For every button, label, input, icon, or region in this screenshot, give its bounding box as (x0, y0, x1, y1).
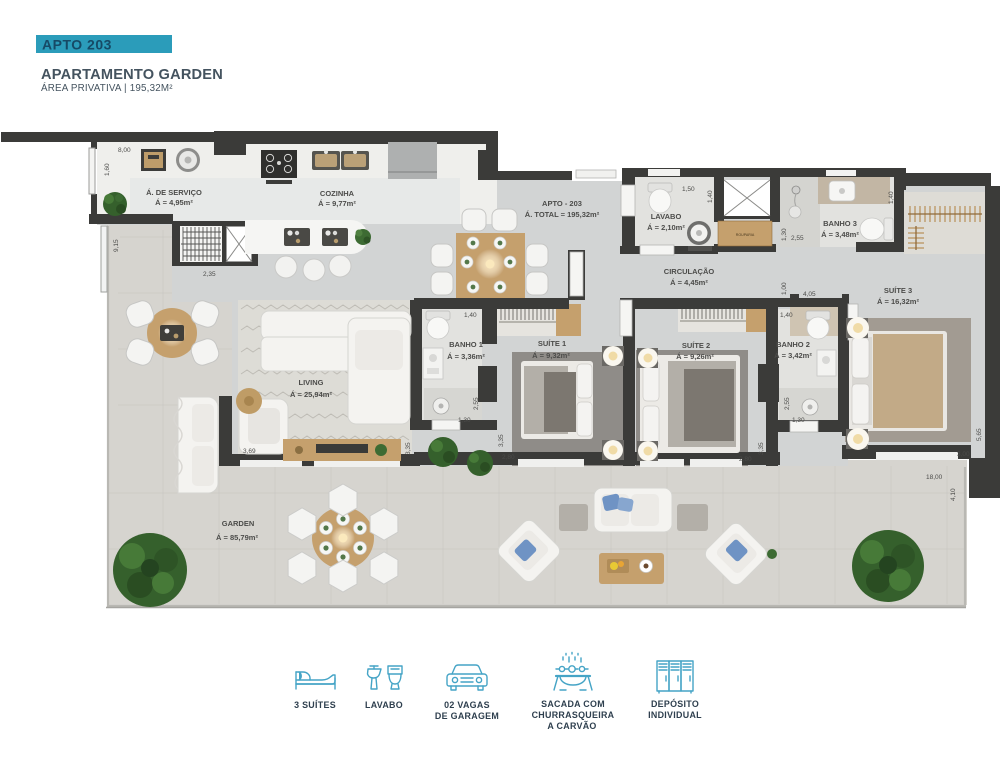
svg-text:APTO - 203: APTO - 203 (542, 199, 582, 208)
svg-text:1,40: 1,40 (707, 190, 714, 203)
svg-text:APARTAMENTO GARDEN: APARTAMENTO GARDEN (41, 67, 223, 83)
svg-text:SACADA COM: SACADA COM (541, 699, 605, 709)
svg-text:INDIVIDUAL: INDIVIDUAL (648, 710, 702, 720)
svg-text:18,00: 18,00 (926, 474, 943, 481)
svg-text:1,40: 1,40 (888, 191, 895, 204)
svg-text:8,00: 8,00 (118, 147, 131, 154)
svg-text:1,30: 1,30 (458, 417, 471, 424)
svg-text:BANHO 2: BANHO 2 (776, 340, 810, 349)
svg-text:1,60: 1,60 (104, 163, 111, 176)
svg-text:1,40: 1,40 (780, 312, 793, 319)
svg-text:2,80: 2,80 (502, 454, 515, 461)
svg-text:Á = 85,79m²: Á = 85,79m² (216, 533, 258, 542)
svg-text:1,30: 1,30 (781, 228, 788, 241)
svg-text:02 VAGAS: 02 VAGAS (444, 700, 490, 710)
svg-text:BANHO 3: BANHO 3 (823, 219, 857, 228)
svg-text:2,80: 2,80 (739, 456, 752, 463)
svg-text:Á. TOTAL = 195,32m²: Á. TOTAL = 195,32m² (525, 210, 600, 219)
svg-text:ÁREA PRIVATIVA | 195,32M²: ÁREA PRIVATIVA | 195,32M² (41, 83, 173, 94)
svg-text:SUÍTE 1: SUÍTE 1 (538, 339, 566, 348)
svg-text:2,55: 2,55 (784, 397, 791, 410)
svg-text:3,35: 3,35 (405, 442, 412, 455)
svg-text:Á = 25,94m²: Á = 25,94m² (290, 390, 332, 399)
svg-text:2,35: 2,35 (203, 271, 216, 278)
svg-text:3 SUÍTES: 3 SUÍTES (294, 700, 336, 710)
svg-text:3,69: 3,69 (243, 448, 256, 455)
svg-text:2,55: 2,55 (473, 397, 480, 410)
svg-text:Á = 3,48m²: Á = 3,48m² (821, 230, 859, 239)
svg-text:Á = 3,36m²: Á = 3,36m² (447, 352, 485, 361)
svg-text:4,05: 4,05 (803, 291, 816, 298)
svg-text:9,15: 9,15 (113, 239, 120, 252)
svg-text:SUÍTE 2: SUÍTE 2 (682, 341, 710, 350)
svg-text:LIVING: LIVING (298, 378, 323, 387)
svg-text:CHURRASQUEIRA: CHURRASQUEIRA (532, 710, 615, 720)
svg-text:1,00: 1,00 (781, 282, 788, 295)
svg-text:DEPÓSITO: DEPÓSITO (651, 698, 699, 709)
svg-text:1,40: 1,40 (464, 312, 477, 319)
svg-text:Á. DE SERVIÇO: Á. DE SERVIÇO (146, 188, 202, 197)
svg-text:LAVABO: LAVABO (365, 700, 403, 710)
svg-text:GARDEN: GARDEN (222, 519, 255, 528)
svg-text:SUÍTE 3: SUÍTE 3 (884, 286, 912, 295)
svg-text:COZINHA: COZINHA (320, 189, 355, 198)
svg-text:3,35: 3,35 (498, 434, 505, 447)
svg-text:BANHO 1: BANHO 1 (449, 340, 483, 349)
svg-text:5,65: 5,65 (976, 428, 983, 441)
svg-text:Á = 9,26m²: Á = 9,26m² (676, 352, 714, 361)
svg-text:DE GARAGEM: DE GARAGEM (435, 711, 499, 721)
svg-text:CIRCULAÇÃO: CIRCULAÇÃO (664, 267, 715, 276)
svg-text:Á = 2,10m²: Á = 2,10m² (647, 223, 685, 232)
svg-text:3,00: 3,00 (957, 451, 970, 458)
svg-text:Á = 3,42m²: Á = 3,42m² (774, 351, 812, 360)
svg-text:1,50: 1,50 (682, 186, 695, 193)
svg-text:Á = 9,77m²: Á = 9,77m² (318, 199, 356, 208)
svg-text:Á = 9,32m²: Á = 9,32m² (532, 351, 570, 360)
svg-text:2,55: 2,55 (791, 235, 804, 242)
svg-text:APTO 203: APTO 203 (42, 37, 112, 53)
svg-text:Á = 4,45m²: Á = 4,45m² (670, 278, 708, 287)
svg-text:4,10: 4,10 (950, 488, 957, 501)
svg-text:Á = 16,32m²: Á = 16,32m² (877, 297, 919, 306)
svg-text:Á = 4,95m²: Á = 4,95m² (155, 198, 193, 207)
svg-text:ROUPARIA: ROUPARIA (736, 233, 755, 237)
svg-text:3,35: 3,35 (758, 442, 765, 455)
svg-text:A CARVÃO: A CARVÃO (547, 721, 596, 731)
svg-text:LAVABO: LAVABO (651, 212, 682, 221)
svg-text:1,30: 1,30 (792, 417, 805, 424)
